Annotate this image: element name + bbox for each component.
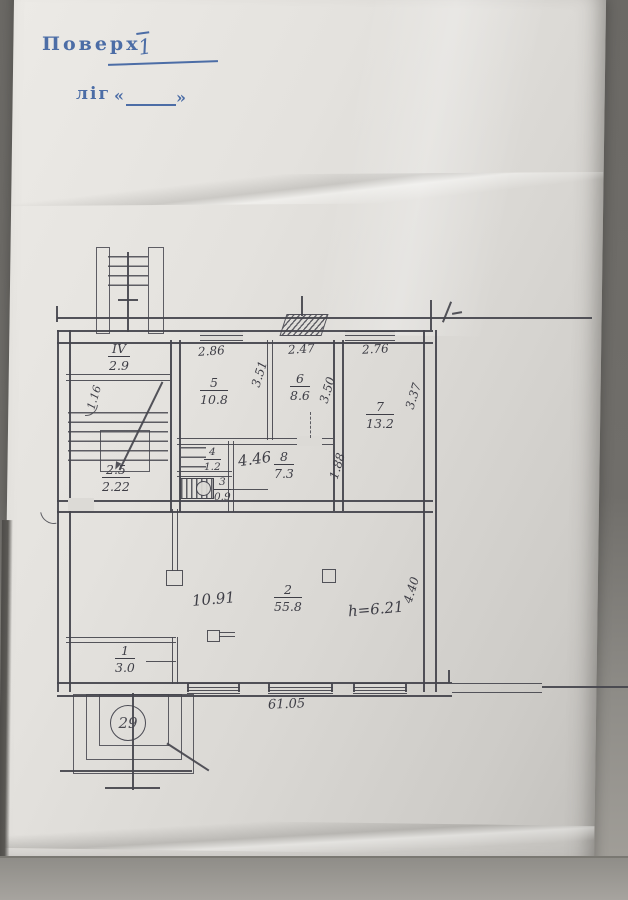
room7-label: 7 13.2 [366,400,394,430]
room2-width-dim: 10.91 [191,590,235,609]
stair-unit-label: IV 2.9 [108,342,130,372]
door-swing-dashed [310,412,312,438]
stair-width-dim: 2.22 [102,478,130,493]
vent-center-line [301,296,303,316]
room5-width-dim: 2.86 [198,344,225,358]
room2-label: 2 55.8 [274,583,302,613]
stair-unit-number: IV [108,342,130,357]
bottom-line-extension-double [452,683,542,693]
paper-crease [2,818,594,856]
room3-leader-line [226,489,268,490]
porch-lower-tick [105,787,160,789]
exterior-stair-right-post [148,247,164,334]
room7-number: 7 [366,400,394,415]
room1-number: 1 [115,644,135,659]
room4-label: 4 1.2 [204,447,221,473]
letter-quote-open: « [114,86,124,105]
room6-width-dim: 2.47 [288,342,315,356]
room8-area: 7.3 [274,465,294,480]
column-post-a [166,570,183,586]
exterior-stair-center-line [127,252,129,332]
window-tick [238,683,240,692]
room4-area: 1.2 [204,460,221,473]
room5-label: 5 10.8 [200,376,228,406]
background-edge-bottom [0,856,628,900]
wall-room5-6 [267,340,273,440]
stair-unit-area: 2.9 [108,357,130,372]
window-bottom-3 [353,683,407,694]
room3-label: 3 0.9 [214,477,231,503]
letter-label: ліг [76,84,111,104]
room7-area: 13.2 [366,415,394,430]
total-width-dimension: 61.05 [268,697,306,711]
letter-underline [126,104,176,106]
room3-fixture-circle [196,481,211,496]
room6-label: 6 8.6 [290,372,310,402]
wall-middle [57,500,433,513]
letter-quote-close: » [176,88,186,107]
porch-center-line [132,693,134,790]
room1-leader-line [146,661,176,662]
bottom-line-extension-single [542,686,628,688]
room8-width-dim: 4.46 [237,450,272,470]
entrance-number: 29 [118,716,137,731]
room2-area: 55.8 [274,598,302,613]
room1-area: 3.0 [115,659,135,674]
room6-number: 6 [290,372,310,387]
photo-of-floor-plan-document: Поверх 1 ліг « » IV 2.9 1.16 2.5 2.22 2.… [0,0,628,900]
bottom-dim-tick [448,670,450,683]
wall-stub-room2 [172,509,178,571]
stair-landing-dim: 2.5 [102,463,130,478]
column-post-b [322,569,336,583]
room2-number: 2 [274,583,302,598]
exterior-stair-tick [118,299,138,301]
wall-top-right-stub [430,300,432,330]
room1-label: 1 3.0 [115,644,135,674]
window-tick [331,683,333,692]
floor-label: Поверх [42,33,141,55]
top-dim-tick-left [56,306,58,322]
middle-wall-opening [68,498,94,511]
stair-landing-label: 2.5 2.22 [102,463,130,493]
wall-room6-7 [333,340,344,511]
vent-shaft-hatch [279,314,328,336]
window-tick [187,683,189,692]
window-tick [268,683,270,692]
room3-number: 3 [214,477,231,490]
entrance-number-circle: 29 [110,705,146,741]
room4-number: 4 [204,447,221,460]
wall-stair-room-bottom [66,374,170,381]
room8-number: 8 [274,450,294,465]
post-c-tick1 [219,632,235,633]
room6-area: 8.6 [290,387,310,402]
room3-area: 0.9 [214,490,231,503]
room8-label: 8 7.3 [274,450,294,480]
window-tick [353,683,355,692]
window-top-1 [200,331,243,341]
window-tick [405,683,407,692]
paper-crease [11,172,603,206]
small-room4-hatch [181,447,206,470]
window-bottom-1 [187,683,240,694]
window-bottom-2 [268,683,333,694]
window-top-2 [345,331,395,341]
room5-area: 10.8 [200,391,228,406]
room5-number: 5 [200,376,228,391]
room7-width-dim: 2.76 [362,342,389,355]
post-c-tick2 [219,636,235,637]
porch-bottom-line [60,770,192,772]
